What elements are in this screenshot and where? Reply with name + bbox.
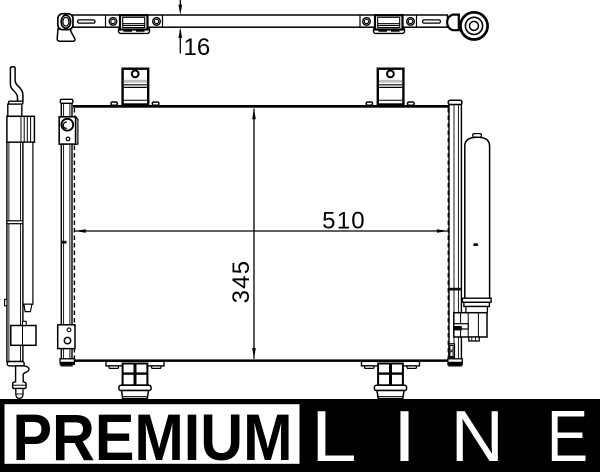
svg-text:I: I [393,396,417,472]
svg-text:PREMIUM: PREMIUM [13,400,293,472]
svg-text:345: 345 [228,260,255,304]
svg-text:E: E [547,396,588,472]
svg-text:L: L [311,396,357,472]
svg-text:510: 510 [322,207,366,234]
svg-text:16: 16 [184,34,211,61]
svg-text:N: N [451,396,504,472]
